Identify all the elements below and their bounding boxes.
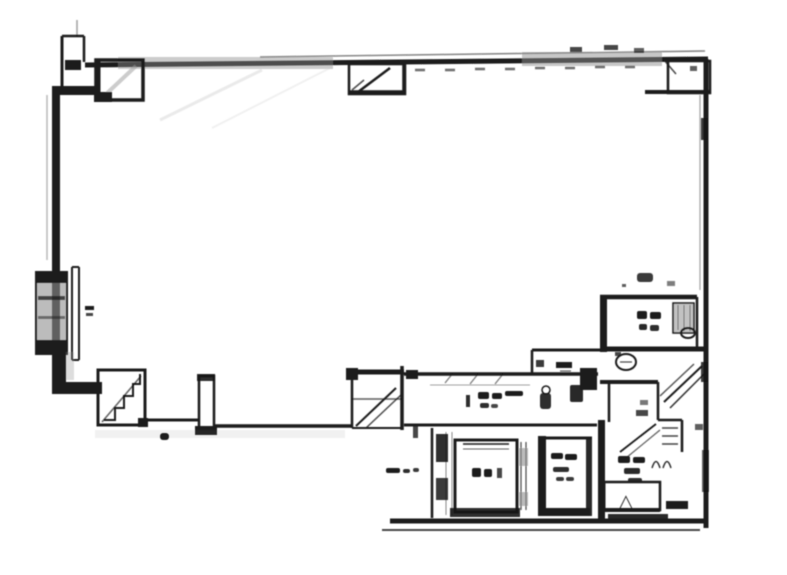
elevator-rail-lines — [519, 442, 528, 510]
bottom-left-wall-corner — [52, 345, 102, 394]
stair-treads — [662, 428, 678, 444]
right-wall — [700, 59, 709, 528]
scan-speck — [695, 424, 703, 430]
corridor-label-marks — [466, 391, 523, 408]
door-mark — [413, 426, 418, 438]
bottom-wall — [382, 521, 708, 530]
top-left-wall-stub — [62, 20, 84, 90]
corridor-sink-fixture — [540, 385, 583, 409]
label-blob — [666, 501, 688, 509]
storage-room — [538, 436, 592, 516]
toilet-room-label-marks — [637, 311, 661, 331]
service-corridor — [404, 368, 598, 425]
floor-plan-drawing: △ — [0, 0, 787, 575]
corner-column-c — [346, 366, 404, 430]
narrow-column-b — [195, 374, 217, 435]
floor-plan: △ — [36, 20, 710, 530]
elevator-label-marks — [472, 468, 502, 478]
scan-squiggle-marks — [652, 462, 671, 469]
scan-specks-above-toilet — [622, 273, 675, 287]
top-middle-column — [349, 64, 405, 94]
machine-closet: △ — [604, 482, 660, 512]
hatched-column-left — [98, 370, 148, 427]
south-wall-segment — [95, 426, 352, 440]
stair-room-label-marks — [618, 456, 645, 483]
exterior-label-marks — [386, 468, 419, 473]
storage-room-label-marks — [551, 453, 577, 481]
heavy-bottom-edge — [608, 514, 668, 522]
scan-streaks — [160, 68, 330, 128]
top-wall — [85, 45, 708, 70]
toilet-room — [600, 273, 708, 352]
toilet-stall-fixture — [673, 303, 695, 338]
toilet-bowl-fixture — [615, 352, 636, 370]
stair-triangle-symbol: △ — [619, 491, 633, 512]
staircase — [600, 364, 706, 458]
scanned-floor-plan-page: △ — [0, 0, 787, 575]
stair-hall-room: △ — [598, 420, 703, 522]
stair-flight-upper — [660, 364, 706, 408]
elevator — [386, 426, 528, 518]
stair-flight-lower — [620, 424, 660, 458]
